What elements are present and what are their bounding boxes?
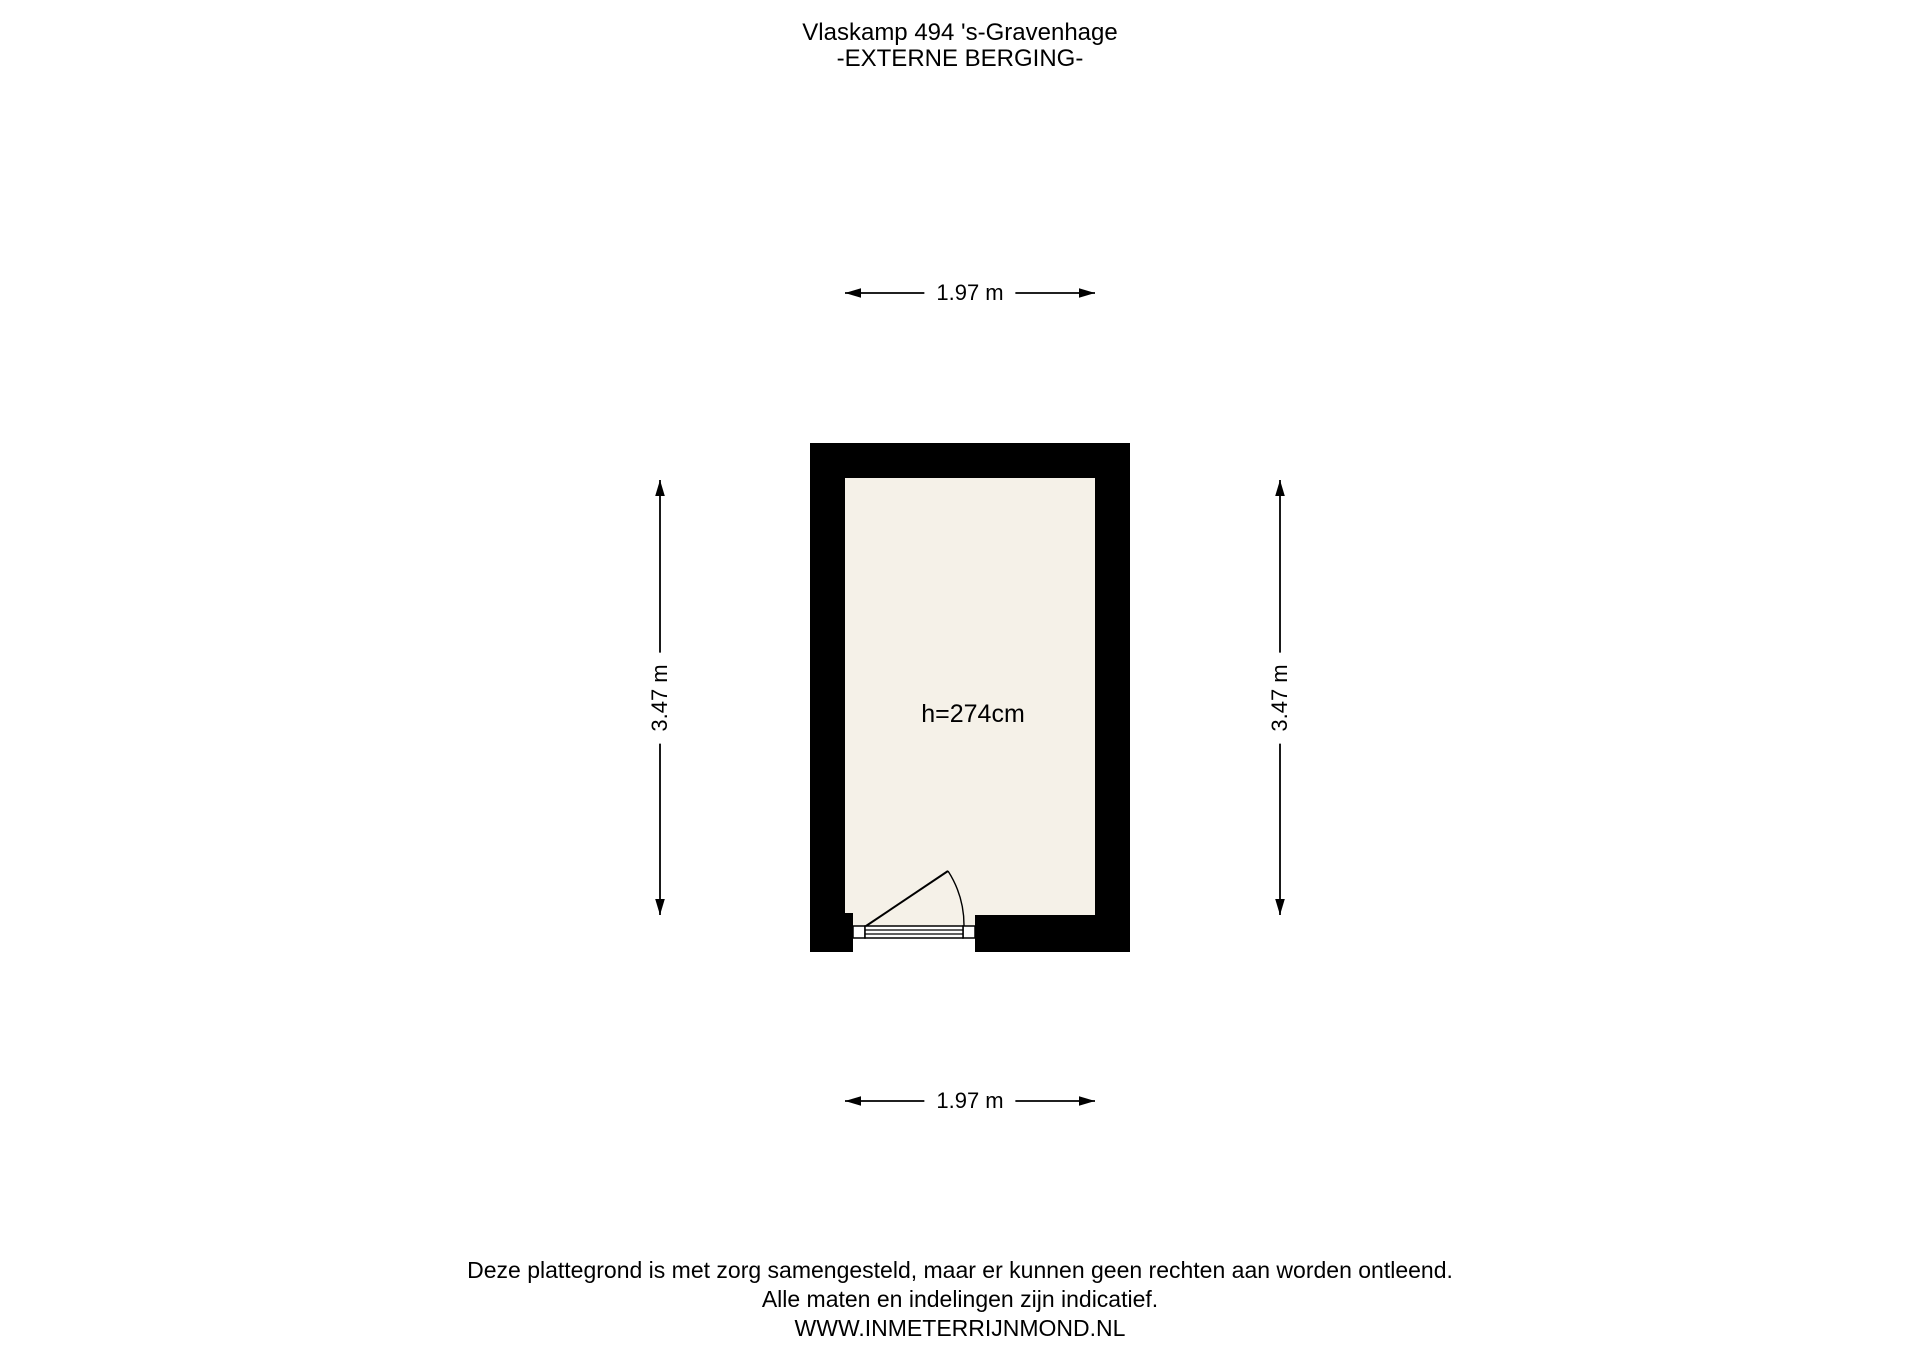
wall-top [810,443,1130,478]
door-threshold [865,926,963,938]
door-frame-left [853,926,865,938]
wall-bottom-right [975,915,1130,952]
wall-left [810,443,845,952]
footer-disclaimer-line1: Deze plattegrond is met zorg samengestel… [0,1256,1920,1285]
floorplan-page: Vlaskamp 494 's-Gravenhage -EXTERNE BERG… [0,0,1920,1358]
dimension-label-right: 3.47 m [1267,652,1293,743]
dimension-label-bottom: 1.97 m [924,1088,1015,1114]
footer-website: WWW.INMETERRIJNMOND.NL [0,1314,1920,1343]
dimension-label-top: 1.97 m [924,280,1015,306]
room-height-label: h=274cm [921,700,1025,728]
room-floor [845,478,1095,915]
door-opening-floor [853,915,975,926]
door-jamb-left-wall [840,913,853,952]
floorplan-drawing [0,0,1920,1358]
footer-disclaimer-line2: Alle maten en indelingen zijn indicatief… [0,1285,1920,1314]
door-frame-right [963,926,975,938]
dimension-label-left: 3.47 m [647,652,673,743]
footer-disclaimer: Deze plattegrond is met zorg samengestel… [0,1256,1920,1343]
wall-right [1095,443,1130,952]
